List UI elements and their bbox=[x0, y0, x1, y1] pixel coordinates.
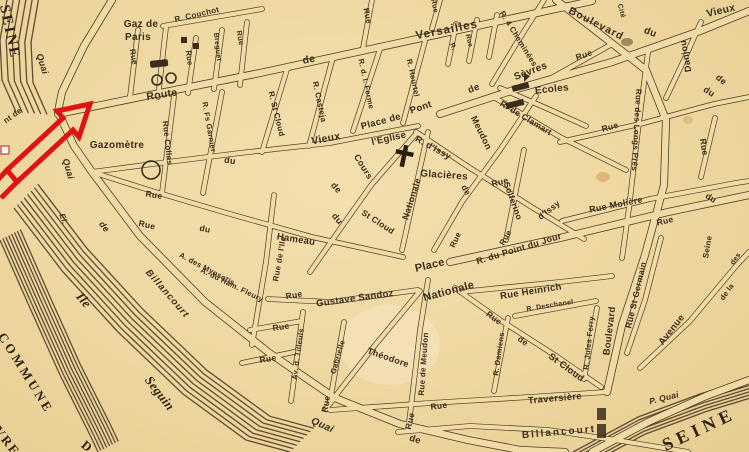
road-surface bbox=[515, 301, 596, 316]
road-surface bbox=[309, 57, 333, 146]
road-surface bbox=[353, 49, 380, 131]
hatched-building-icon bbox=[597, 408, 606, 438]
selection-handle-icon bbox=[1, 146, 9, 154]
vintage-map: SEINESEINECOMMUNESÈVRESDIleSeguinQuaiQua… bbox=[0, 0, 749, 452]
road-surface bbox=[622, 52, 648, 258]
road-surface bbox=[58, 0, 112, 172]
road-surface bbox=[252, 195, 274, 345]
road-surface bbox=[262, 66, 288, 152]
road-surface bbox=[640, 252, 749, 368]
road-surface bbox=[330, 392, 606, 410]
road-surface bbox=[403, 41, 425, 123]
street-network bbox=[58, 0, 749, 452]
road-surface bbox=[268, 290, 418, 302]
road-surface bbox=[162, 96, 174, 193]
road-surface bbox=[460, 276, 612, 292]
road-surface bbox=[494, 318, 508, 391]
road-surface bbox=[203, 92, 222, 193]
road-surface bbox=[560, 97, 749, 142]
road-surface bbox=[310, 135, 415, 272]
road-surface bbox=[584, 308, 597, 379]
road-surface bbox=[363, 0, 372, 48]
road-surface bbox=[450, 195, 749, 262]
road-surface bbox=[492, 0, 544, 84]
road-surface bbox=[701, 118, 715, 177]
map-canvas bbox=[0, 0, 749, 452]
